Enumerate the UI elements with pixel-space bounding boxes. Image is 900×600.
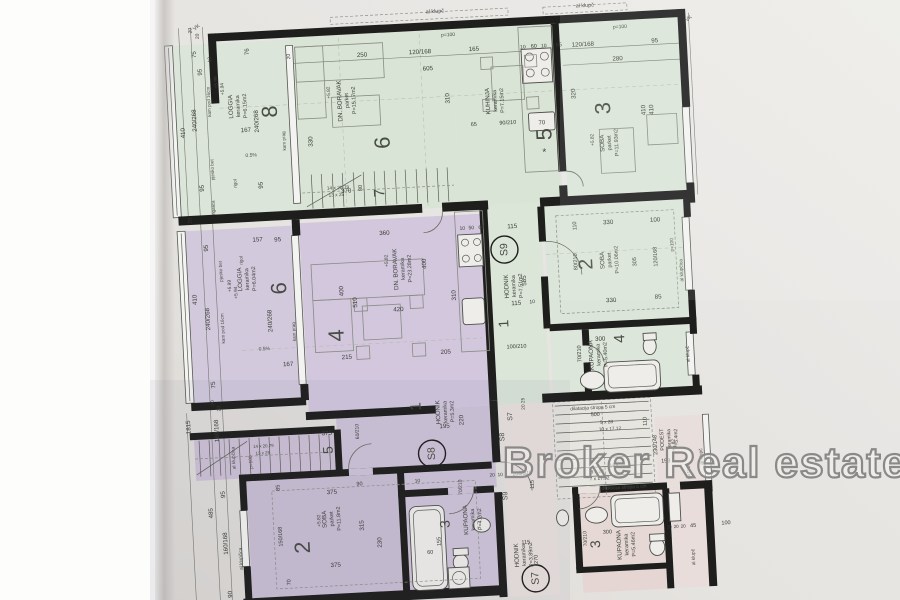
photo-lighting (150, 0, 900, 600)
photo-background-strip (0, 0, 155, 600)
floorplan-svg: S9S8S7 al klupčal klupčVKVKp=100p=100202… (0, 0, 900, 600)
floorplan-photo: S9S8S7 al klupčal klupčVKVKp=100p=100202… (0, 0, 900, 600)
watermark-text: Broker Real estate (503, 439, 900, 487)
